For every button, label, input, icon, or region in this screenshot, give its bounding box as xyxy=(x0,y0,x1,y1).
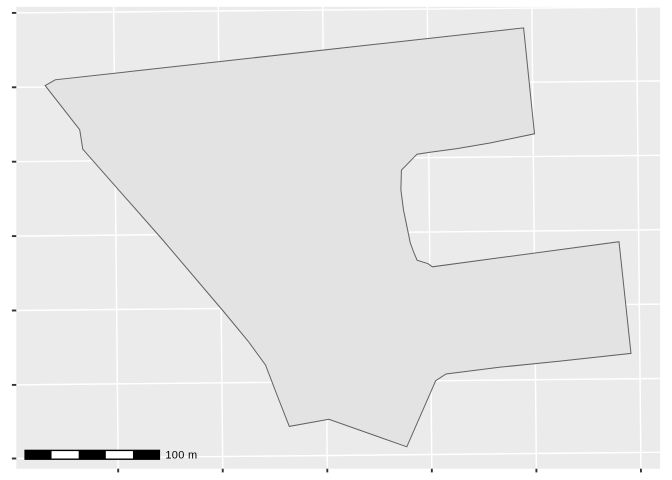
svg-text:100 m: 100 m xyxy=(165,450,197,462)
